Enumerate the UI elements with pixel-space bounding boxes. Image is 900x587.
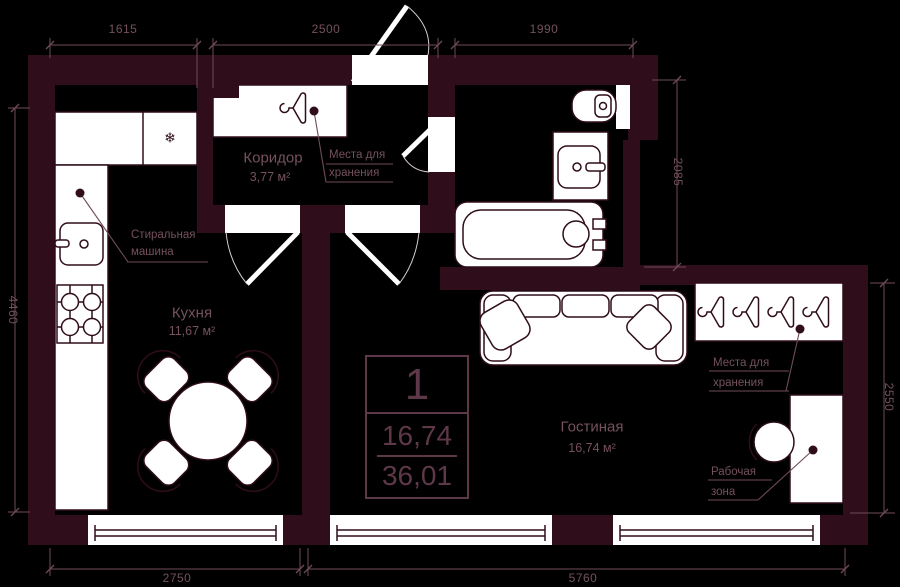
- wall-bath-left-upper: [428, 85, 455, 117]
- corridor-name: Коридор: [243, 150, 302, 167]
- dim-label-left: 4460: [6, 296, 20, 325]
- storage-living-label-line2: хранения: [713, 377, 763, 389]
- living-area: 16,74 м²: [568, 441, 616, 455]
- bath-door-arc: [403, 156, 429, 172]
- kitchen-name: Кухня: [172, 305, 212, 322]
- fridge-snowflake-icon: ❄: [164, 130, 176, 147]
- dim-label-top-right: 1990: [530, 22, 559, 36]
- kitchen-faucet: [55, 240, 69, 247]
- washer-label-line2: машина: [131, 246, 174, 258]
- bathtub-tap: [593, 219, 606, 229]
- work-zone-leader-dot: [809, 446, 818, 455]
- bathtub-tap: [593, 240, 606, 250]
- windows: [88, 515, 820, 545]
- dim-label-right-living: 2550: [882, 383, 896, 412]
- wall-stub: [213, 85, 239, 98]
- storage-corridor-label-line1: Места для: [329, 149, 385, 161]
- wall-corridor-south-1: [197, 205, 225, 233]
- doors: [225, 6, 455, 284]
- wall-bath-bottom: [440, 267, 640, 290]
- wall-bottom-pier-1: [28, 515, 88, 545]
- kitchen-door-arc: [226, 232, 247, 284]
- dim-label-bottom-left: 2750: [163, 571, 192, 585]
- dining-table: [169, 382, 247, 460]
- stove-burner: [84, 319, 101, 336]
- washbasin-faucet: [586, 163, 605, 171]
- wall-kitchen-living: [302, 233, 330, 515]
- bathroom-fixtures: [455, 85, 630, 267]
- wall-left: [28, 55, 55, 545]
- toilet: [572, 90, 616, 122]
- sofa-cushion: [562, 295, 609, 317]
- corridor-area: 3,77 м²: [250, 170, 291, 184]
- kitchen-area: 11,67 м²: [169, 324, 216, 338]
- stamp-living-area: 16,74: [367, 418, 467, 454]
- desk-chair: [754, 422, 794, 462]
- wall-top-right: [428, 55, 658, 85]
- wall-bottom-pier-2: [283, 515, 330, 545]
- wall-top-left: [28, 55, 352, 85]
- wall-bottom-pier-3: [552, 515, 613, 545]
- kitchen-door-opening: [225, 205, 300, 233]
- stamp-total-area: 36,01: [367, 458, 467, 494]
- storage-corridor-leader-dot: [310, 107, 319, 116]
- stove-burner: [62, 294, 79, 311]
- living-door-opening: [345, 205, 420, 233]
- kitchen-door-leaf: [247, 232, 298, 284]
- dim-label-top-left: 1615: [109, 22, 138, 36]
- entrance-door-arc: [407, 6, 429, 55]
- bath-niche: [616, 85, 630, 129]
- storage-corridor-label-line2: хранения: [329, 167, 379, 179]
- living-fixtures: [476, 283, 843, 503]
- wall-corridor-south-2: [300, 205, 345, 233]
- wall-bath-right-upper: [628, 55, 658, 140]
- washer-label-line1: Стиральная: [131, 229, 195, 241]
- wall-kitchen-corridor: [197, 85, 213, 205]
- dim-label-right-bathroom: 2085: [671, 158, 685, 187]
- wall-wardrobe-top: [640, 265, 868, 285]
- washer-leader-dot: [76, 189, 85, 198]
- dining-set: [127, 340, 288, 501]
- stamp-fraction-line: [377, 455, 457, 457]
- living-door-arc: [399, 232, 419, 284]
- stamp-room-count: 1: [367, 357, 467, 414]
- bathtub-drain: [563, 221, 589, 247]
- stove-burner: [62, 319, 79, 336]
- wall-bath-right-lower: [623, 140, 640, 267]
- storage-living-leader-dot: [796, 325, 805, 334]
- wall-corridor-south-3: [420, 205, 455, 233]
- stove-burner: [84, 294, 101, 311]
- dim-label-top-middle: 2500: [312, 22, 341, 36]
- corridor-fixtures: [213, 85, 347, 137]
- living-name: Гостиная: [561, 419, 624, 436]
- dim-label-bottom-right: 5760: [569, 571, 598, 585]
- apartment-stamp: 1 16,74 36,01: [365, 355, 469, 499]
- work-zone-label-line1: Рабочая: [711, 466, 756, 478]
- work-zone-label-line2: зона: [711, 486, 735, 498]
- wall-right: [843, 265, 868, 545]
- floor-plan: 1615 2500 1990 4460 2085 2550 2750 5760 …: [0, 0, 900, 587]
- living-door-leaf: [347, 232, 399, 284]
- storage-living-label-line1: Места для: [713, 357, 769, 369]
